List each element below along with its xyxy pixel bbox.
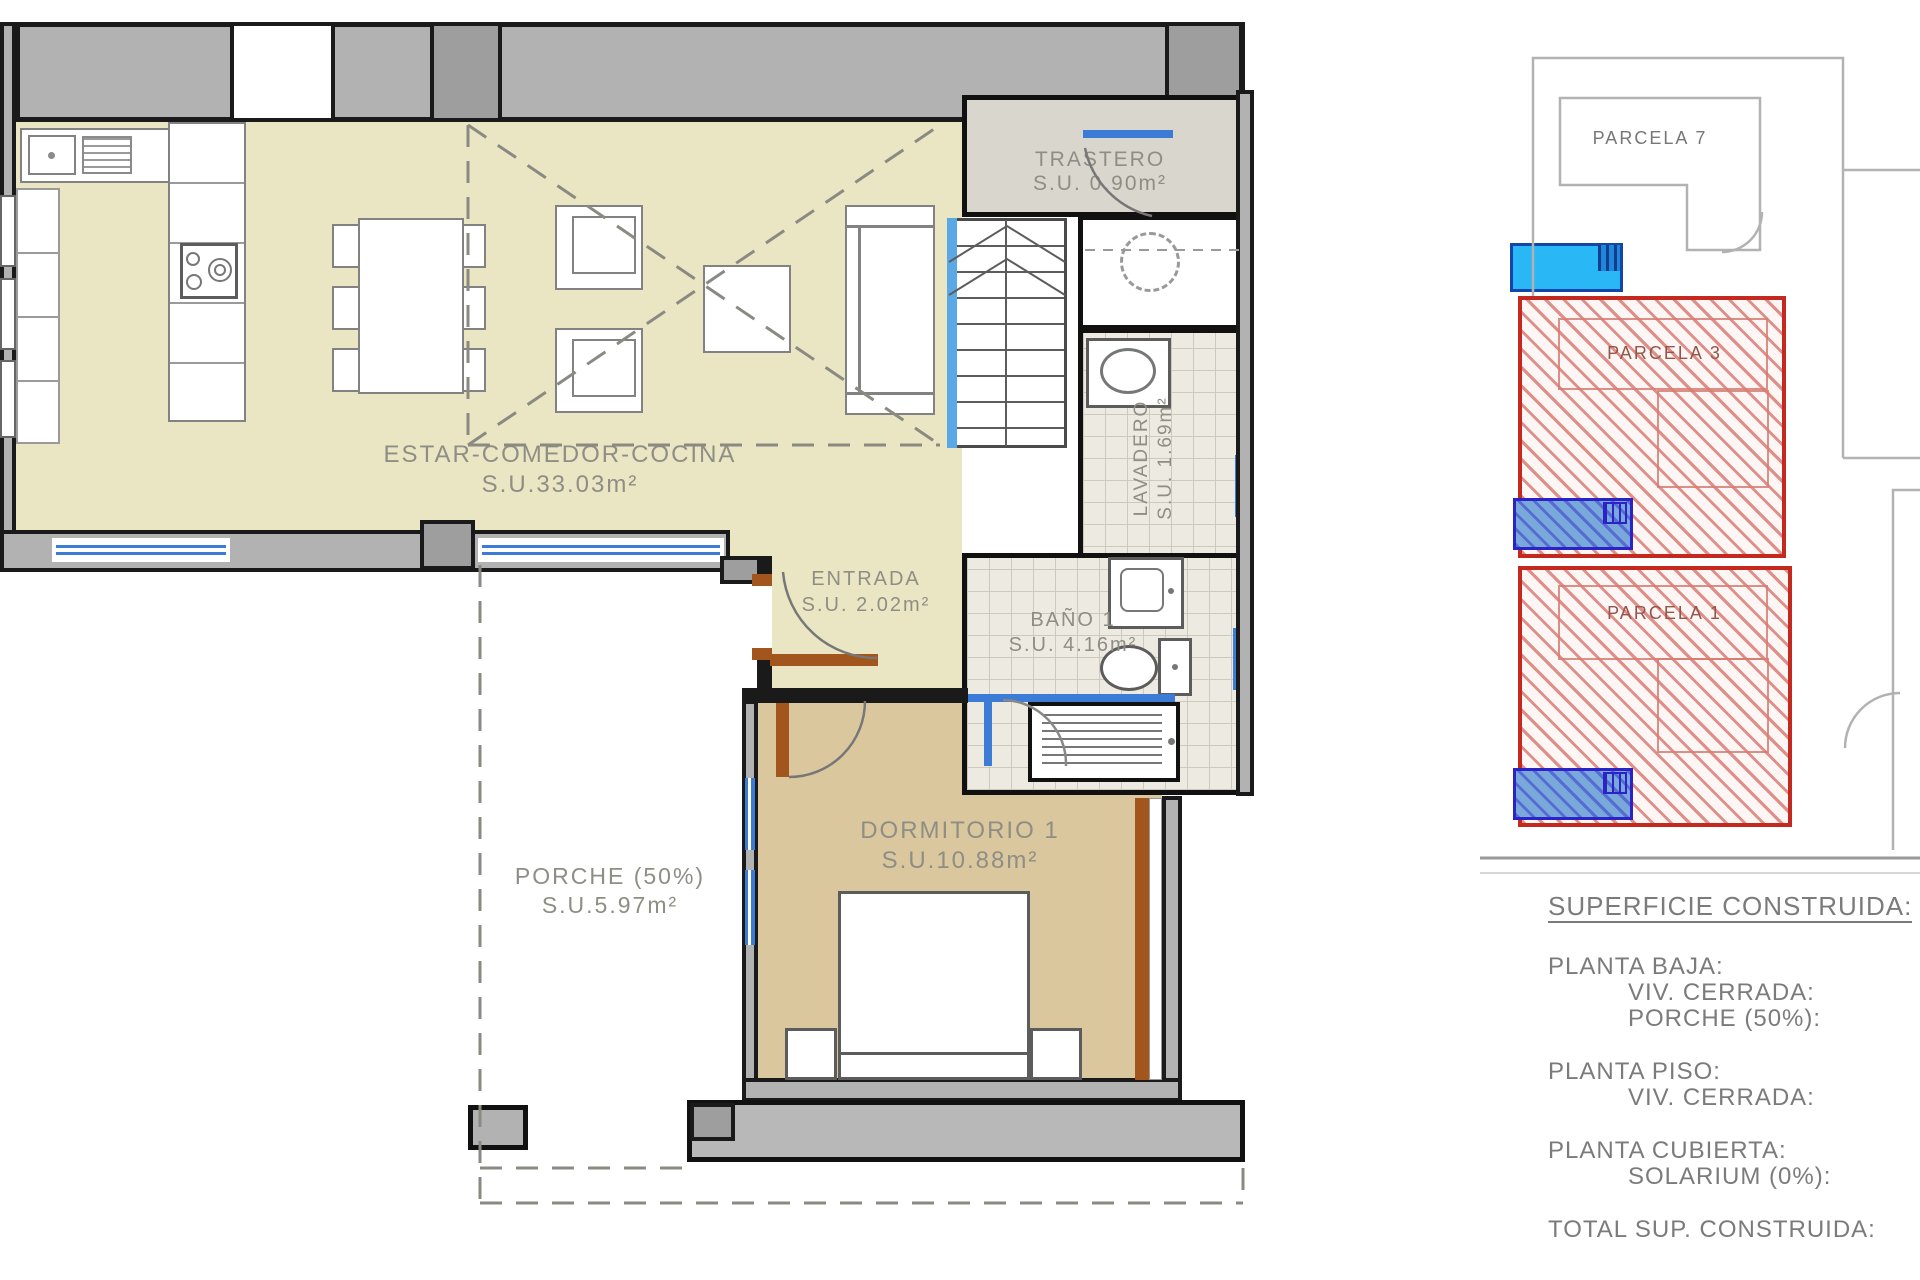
porch-label: PORCHE (50%) S.U.5.97m² [465,862,755,920]
left-window [0,195,16,267]
legend-line-total: TOTAL SUP. CONSTRUIDA: [1548,1217,1920,1243]
parcela-7-label: PARCELA 7 [1570,128,1730,149]
entrada-label: ENTRADA S.U. 2.02m² [770,566,962,618]
armchair-cushion [572,216,636,274]
bathroom-label: BAÑO 1 S.U. 4.16m² [968,608,1178,658]
nightstand [1030,1028,1082,1080]
trastero-door-glazing [1083,130,1173,138]
parcela-1-house-outline [1657,658,1769,753]
sofa-seam [846,225,933,228]
room-area: S.U. 2.02m² [770,592,962,618]
legend-line-pb-viv: VIV. CERRADA: [1548,980,1920,1006]
legend-line-pc-solarium: SOLARIUM (0%): [1548,1164,1920,1190]
legend-line-planta-piso: PLANTA PISO: [1548,1059,1920,1085]
staircase-edge [947,218,957,448]
sofa-armrest [858,225,861,395]
living-label: ESTAR-COMEDOR-COCINA S.U.33.03m² [330,440,790,500]
entrada-door-leaf [770,654,878,666]
terrace [687,1100,1245,1162]
nightstand [785,1028,837,1080]
legend-line-planta-baja: PLANTA BAJA: [1548,954,1920,980]
top-pillar [430,22,502,122]
lavadero-label: LAVADERO S.U. 1.69m² [1130,363,1186,553]
parcela-3-house-outline [1657,390,1769,488]
armchair-cushion [572,339,636,397]
room-area: S.U.10.88m² [795,846,1125,876]
sofa-seam [846,392,933,395]
bedroom-north-wall [742,688,968,703]
shower-screen [950,694,1175,702]
pool-parcela1-steps [1603,772,1627,794]
legend-line-pb-porche: PORCHE (50%): [1548,1006,1920,1032]
legend-line-pp-viv: VIV. CERRADA: [1548,1085,1920,1111]
shower-door-frame [984,702,992,766]
entrada-door-jamb [752,574,772,586]
washbasin-bowl [1120,568,1164,612]
water-heater-icon [1120,232,1180,292]
trastero-label: TRASTERO S.U. 0.90m² [975,148,1225,196]
room-name: ENTRADA [770,566,962,592]
bedroom-window [745,778,755,850]
entrada-door-jamb [752,648,772,660]
legend-block: SUPERFICIE CONSTRUIDA: PLANTA BAJA: VIV.… [1548,893,1920,1243]
staircase-center-line [1005,220,1007,446]
room-name: PORCHE (50%) [465,862,755,891]
dining-table [358,218,464,394]
kitchen-wall-cabinets [16,188,60,444]
coffee-table [703,265,791,353]
room-name: LAVADERO [1130,363,1154,553]
legend-title: SUPERFICIE CONSTRUIDA: [1548,893,1912,923]
terrace-pillar [690,1103,735,1141]
bedroom-label: DORMITORIO 1 S.U.10.88m² [795,816,1125,876]
sink-drainer-icon [82,136,132,174]
room-area: S.U. 4.16m² [968,633,1178,658]
pool-parcela3-steps [1603,502,1627,524]
room-area: S.U. 0.90m² [975,172,1225,196]
pool-cyan-steps [1598,245,1620,271]
parcela-3-label: PARCELA 3 [1567,343,1762,364]
sink-drain-dot [48,152,55,159]
room-area: S.U.5.97m² [465,891,755,920]
hob-burner [186,274,202,290]
parcela-1-label: PARCELA 1 [1567,603,1762,624]
left-window [0,278,16,350]
south-window-glazing [482,545,720,555]
left-window [0,360,16,438]
bedroom-south-wall [742,1078,1182,1102]
washbasin-tap-dot [1168,588,1174,594]
room-area: S.U.33.03m² [330,470,790,500]
legend-line-planta-cubierta: PLANTA CUBIERTA: [1548,1138,1920,1164]
south-window-glazing [56,545,226,555]
south-pillar [420,520,475,570]
shower-lines [1042,714,1162,770]
toilet-button-dot [1172,664,1178,670]
room-name: DORMITORIO 1 [795,816,1125,846]
hob-burner [214,264,226,276]
bedroom-door-leaf [776,703,789,777]
room-name: ESTAR-COMEDOR-COCINA [330,440,790,470]
bedroom-east-wall [1162,796,1182,1102]
top-window [230,26,335,118]
room-area: S.U. 1.69m² [1154,363,1178,553]
staircase [947,218,1067,448]
wardrobe-interior [1149,798,1162,1080]
wardrobe [1135,798,1149,1080]
floor-plan-sheet: TRASTERO S.U. 0.90m² LAVADERO S.U. 1.69m… [0,0,1920,1280]
room-name: BAÑO 1 [968,608,1178,633]
room-name: TRASTERO [975,148,1225,172]
porch-column [468,1105,528,1150]
bed-sheet-line [841,1052,1027,1055]
hob-burner [186,252,200,266]
east-wall [1236,90,1254,796]
shower-drain-dot [1168,738,1175,745]
